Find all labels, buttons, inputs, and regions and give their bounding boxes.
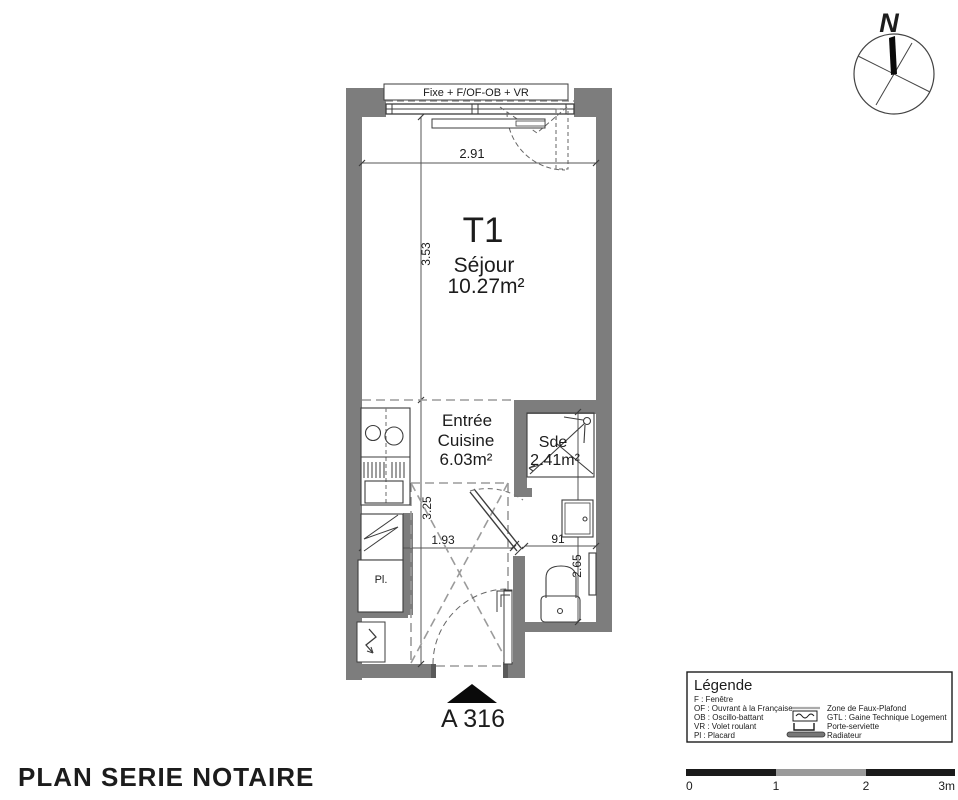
wall-sde-left	[514, 400, 527, 490]
room-type-label: T1	[463, 211, 504, 250]
legend-symbol-faux-plafond: Zone de Faux-Plafond	[827, 704, 906, 713]
entree-name-2: Cuisine	[438, 431, 495, 450]
dim-entree-width: 1.93	[431, 533, 455, 547]
scale-bar: 0 1 2 3m	[686, 769, 955, 793]
compass-needle-icon	[889, 36, 897, 75]
dim-wc-depth: 2.65	[570, 554, 584, 578]
unit-marker: A 316	[441, 684, 505, 733]
wall-bottom-left	[346, 664, 436, 678]
washbasin	[562, 500, 593, 537]
radiator-symbol-icon	[787, 732, 825, 737]
wall-top-left-block	[346, 88, 386, 117]
legend-symbol-gtl: GTL : Gaine Technique Logement	[827, 713, 947, 722]
entree-area: 6.03m²	[440, 450, 493, 469]
sejour-name: Séjour	[454, 254, 515, 277]
shower-head-stem	[584, 425, 585, 443]
scale-tick-1: 1	[773, 779, 780, 793]
entrance-triangle-icon	[447, 684, 497, 703]
sheet-title: PLAN SERIE NOTAIRE	[18, 762, 314, 792]
dim-sejour-depth: 3.53	[419, 242, 433, 266]
sejour-area: 10.27m²	[447, 275, 524, 298]
legend: Légende F : Fenêtre OF : Ouvrant à la Fr…	[687, 672, 952, 742]
legend-abbrev-of: OF : Ouvrant à la Française	[694, 704, 793, 713]
placard-label: Pl.	[375, 574, 388, 586]
unit-label: A 316	[441, 705, 505, 733]
sde-door-leaf-2	[474, 489, 521, 548]
french-door-leaf	[556, 109, 568, 169]
legend-abbrev-pl: Pl : Placard	[694, 731, 735, 740]
floor-plan-drawing: Fixe + F/OF-OB + VR 2.91 3.53 3.25 1.93 …	[0, 0, 958, 800]
window-label: Fixe + F/OF-OB + VR	[423, 87, 529, 99]
door-jamb-right	[503, 664, 508, 678]
scale-segment-1	[686, 769, 776, 776]
legend-abbrev-vr: VR : Volet roulant	[694, 722, 757, 731]
sde-name: Sde	[539, 434, 568, 451]
towel-rail	[589, 553, 596, 595]
dim-entree-depth: 3.25	[420, 496, 434, 520]
north-compass: N	[854, 8, 934, 114]
wc-fixtures	[541, 500, 596, 622]
toilet-button	[558, 609, 563, 614]
entree-name-1: Entrée	[442, 411, 492, 430]
scale-segment-2	[776, 769, 866, 776]
scale-segment-3	[866, 769, 955, 776]
scale-tick-0: 0	[686, 779, 693, 793]
scale-tick-2: 2	[863, 779, 870, 793]
legend-abbrev-f: F : Fenêtre	[694, 695, 734, 704]
wall-right	[596, 88, 612, 632]
legend-abbrev-ob: OB : Oscillo-battant	[694, 713, 764, 722]
dim-top-width: 2.91	[459, 146, 484, 161]
room-labels: T1 Séjour 10.27m² Entrée Cuisine 6.03m² …	[438, 211, 581, 469]
sde-door-leaf	[470, 492, 517, 551]
floor-plan-sheet: Fixe + F/OF-OB + VR 2.91 3.53 3.25 1.93 …	[0, 0, 958, 800]
sde-area: 2.41m²	[530, 452, 580, 469]
legend-symbol-towel: Porte-serviette	[827, 722, 880, 731]
gtl-box	[357, 622, 385, 662]
wall-entree-wc	[513, 556, 525, 676]
legend-title: Légende	[694, 677, 752, 694]
shower-head-icon	[584, 418, 591, 425]
radiator-detail	[516, 121, 545, 126]
shower-arm	[564, 417, 583, 420]
scale-tick-3m: 3m	[938, 779, 955, 793]
gtl-duct	[357, 622, 385, 662]
door-jamb-left	[431, 664, 436, 678]
placard-closet	[358, 560, 403, 612]
legend-symbol-radiator: Radiateur	[827, 731, 862, 740]
entry-door-leaf	[504, 590, 512, 664]
wall-wc-bottom	[525, 622, 612, 632]
